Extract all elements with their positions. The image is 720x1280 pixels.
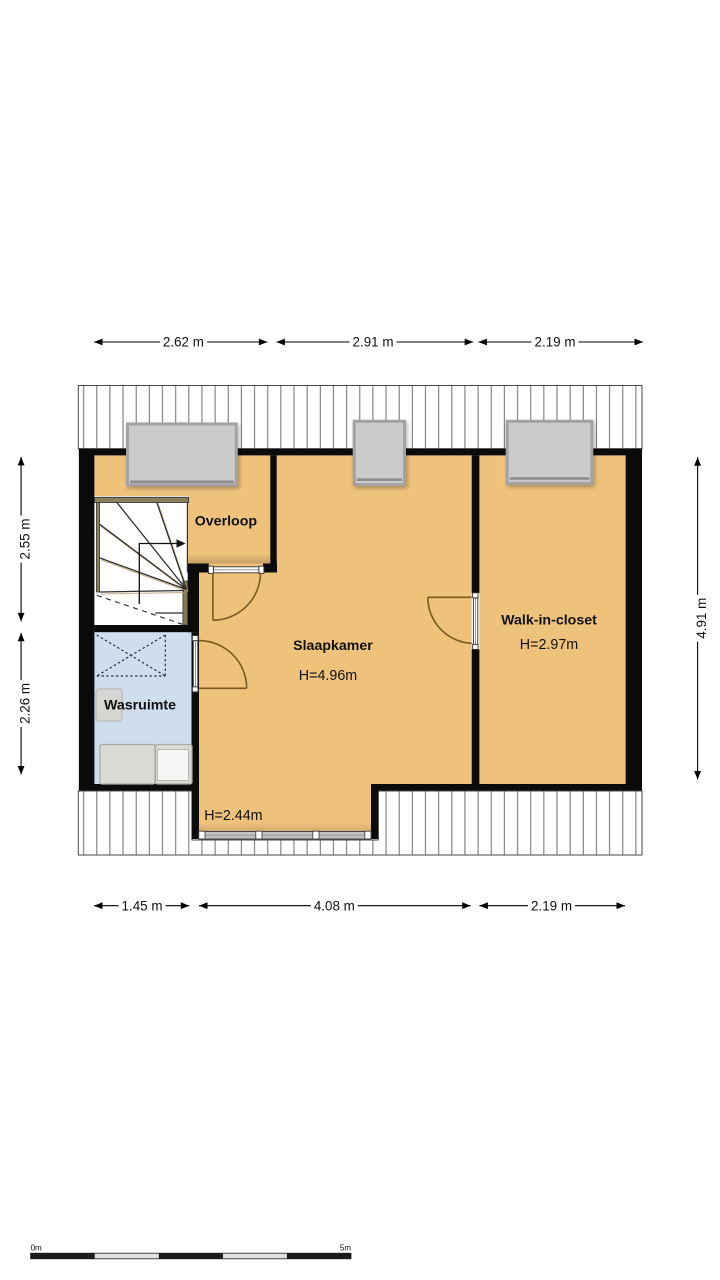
svg-text:2.19 m: 2.19 m [531,898,572,913]
svg-text:H=4.96m: H=4.96m [299,668,357,684]
svg-text:1.45 m: 1.45 m [122,898,163,913]
svg-text:Overloop: Overloop [195,514,258,530]
svg-text:2.26 m: 2.26 m [17,683,32,724]
svg-text:Slaapkamer: Slaapkamer [293,638,373,654]
svg-text:2.19 m: 2.19 m [535,335,576,350]
svg-text:2.55 m: 2.55 m [17,519,32,560]
svg-text:5m: 5m [340,1244,351,1253]
svg-text:4.91 m: 4.91 m [694,598,709,639]
svg-text:4.08 m: 4.08 m [314,898,355,913]
svg-text:Walk-in-closet: Walk-in-closet [501,612,597,628]
svg-text:0m: 0m [31,1244,42,1253]
svg-text:Wasruimte: Wasruimte [104,698,176,714]
svg-text:2.62 m: 2.62 m [163,335,204,350]
svg-text:H=2.44m: H=2.44m [204,808,262,824]
svg-text:H=2.97m: H=2.97m [520,637,578,653]
svg-text:2.91 m: 2.91 m [353,335,394,350]
